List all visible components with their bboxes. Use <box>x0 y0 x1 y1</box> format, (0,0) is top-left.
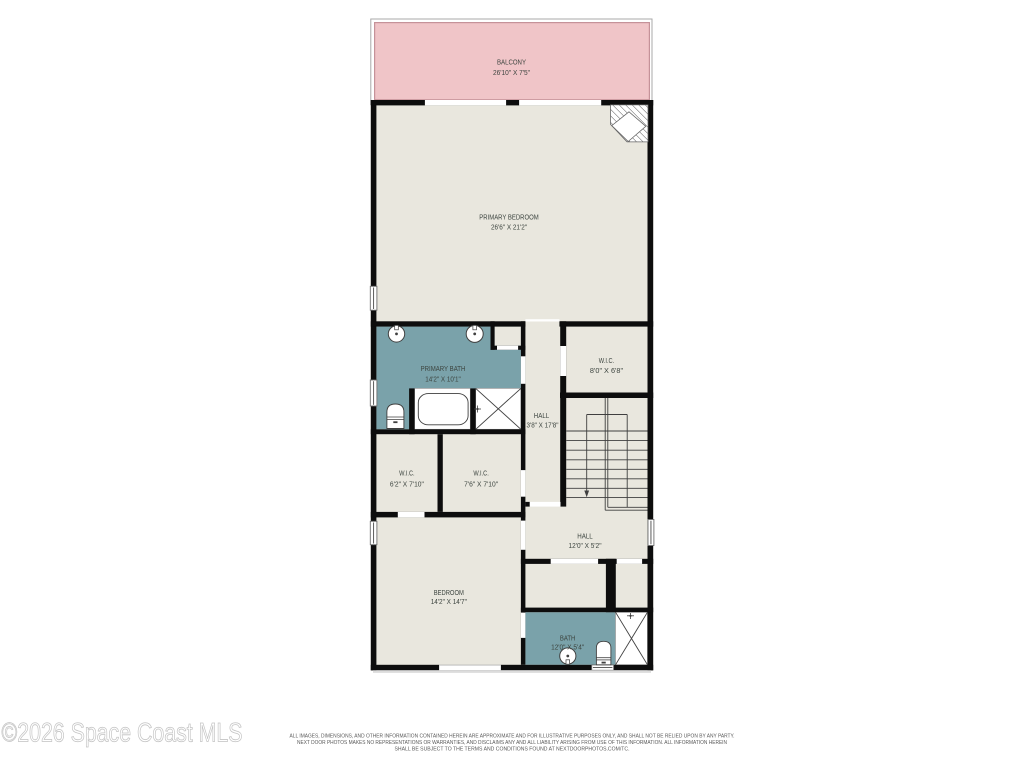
svg-text:PRIMARY BEDROOM: PRIMARY BEDROOM <box>479 214 539 221</box>
svg-text:BATH: BATH <box>560 636 576 643</box>
svg-text:BALCONY: BALCONY <box>497 59 526 66</box>
svg-text:W.I.C.: W.I.C. <box>399 471 415 478</box>
svg-text:14'2" X 10'1": 14'2" X 10'1" <box>425 376 461 383</box>
svg-text:©2026 Space Coast MLS: ©2026 Space Coast MLS <box>2 718 243 748</box>
svg-text:3'8" X 17'8": 3'8" X 17'8" <box>527 422 559 429</box>
svg-text:ALL IMAGES, DIMENSIONS, AND OT: ALL IMAGES, DIMENSIONS, AND OTHER INFORM… <box>290 733 735 739</box>
svg-text:12'0" X 5'4": 12'0" X 5'4" <box>551 645 584 652</box>
svg-text:PRIMARY BATH: PRIMARY BATH <box>421 366 466 373</box>
svg-text:12'0" X 5'2": 12'0" X 5'2" <box>569 543 602 550</box>
svg-text:NEXT DOOR PHOTOS MAKES NO REPR: NEXT DOOR PHOTOS MAKES NO REPRESENTATION… <box>297 740 727 746</box>
svg-text:26'10" X 7'5": 26'10" X 7'5" <box>493 70 530 77</box>
svg-text:26'6" X 21'2": 26'6" X 21'2" <box>491 225 527 232</box>
svg-text:7'6" X 7'10": 7'6" X 7'10" <box>464 481 498 488</box>
svg-text:HALL: HALL <box>534 413 550 420</box>
svg-text:W.I.C.: W.I.C. <box>599 358 615 365</box>
svg-text:14'2" X 14'7": 14'2" X 14'7" <box>431 599 468 606</box>
svg-text:8'0" X 6'8": 8'0" X 6'8" <box>590 368 624 375</box>
svg-text:6'2" X 7'10": 6'2" X 7'10" <box>390 481 424 488</box>
svg-text:W.I.C.: W.I.C. <box>473 471 489 478</box>
svg-text:BEDROOM: BEDROOM <box>434 590 464 597</box>
svg-text:HALL: HALL <box>577 534 593 541</box>
svg-text:SHALL BE SUBJECT TO THE TERMS: SHALL BE SUBJECT TO THE TERMS AND CONDIT… <box>395 747 630 753</box>
